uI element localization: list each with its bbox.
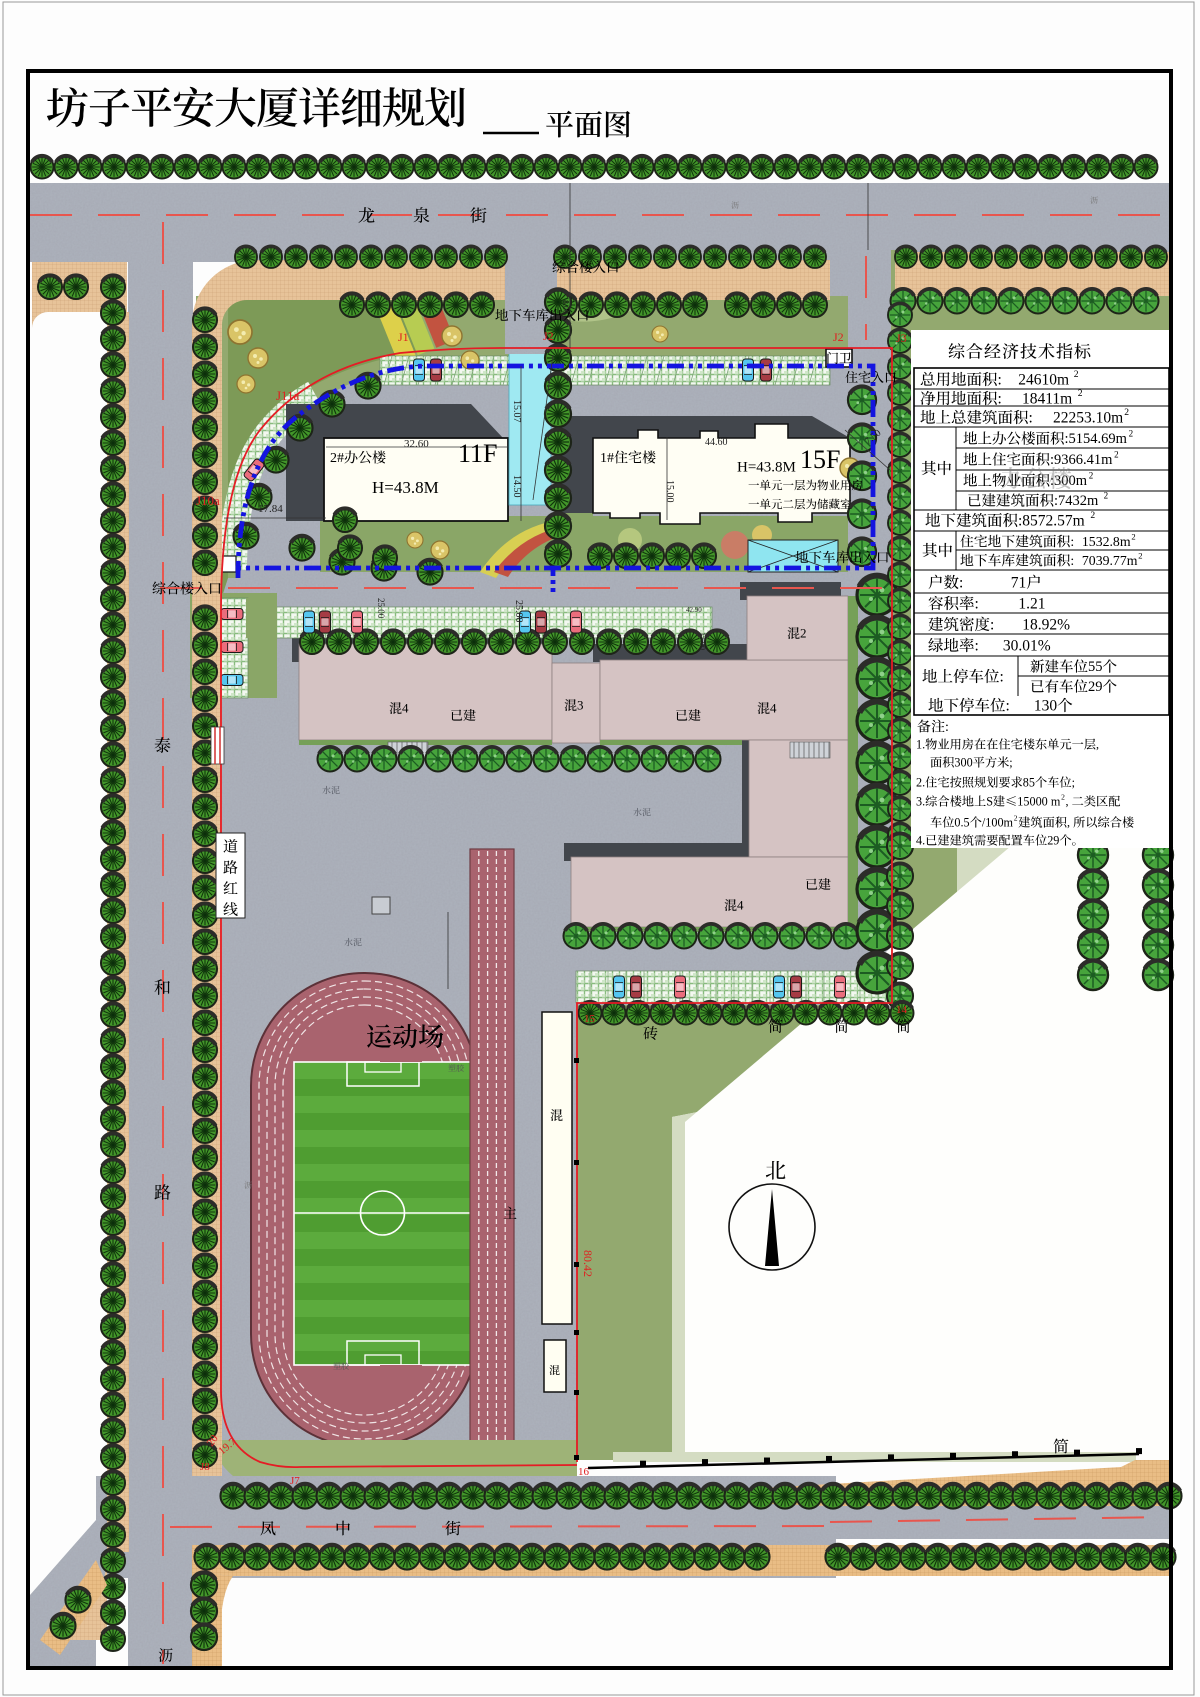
svg-text:8.00: 8.00 [561,300,570,314]
svg-text:2: 2 [1078,388,1083,399]
svg-text:18.92%: 18.92% [1022,617,1070,634]
svg-text:25.00: 25.00 [513,600,524,623]
svg-text:H=43.8M: H=43.8M [737,459,796,475]
svg-text::: : [975,596,979,613]
svg-text:7039.77m: 7039.77m [1082,553,1138,568]
svg-text:J10a: J10a [196,493,220,508]
svg-text::7432m: :7432m [1054,493,1099,509]
svg-text:2: 2 [1124,407,1129,418]
svg-text::: : [1006,698,1010,715]
svg-text:m: m [1051,794,1061,808]
svg-text:1.21: 1.21 [1018,596,1045,613]
svg-text::: : [1000,669,1004,686]
svg-text:J1: J1 [398,330,409,344]
svg-text:2: 2 [1131,531,1135,541]
svg-text:16: 16 [578,1466,590,1478]
svg-text:15F: 15F [800,445,840,474]
svg-text:,: , [1067,815,1070,829]
svg-text:/100m: /100m [982,815,1014,829]
svg-text:14: 14 [896,1004,908,1016]
svg-text:1.: 1. [916,737,925,751]
svg-text:29: 29 [1047,833,1059,847]
svg-text:2: 2 [1138,550,1142,560]
svg-text:42.90: 42.90 [686,606,702,614]
svg-text:S: S [986,794,993,808]
svg-text::9366.41m: :9366.41m [1050,452,1113,468]
svg-text:2: 2 [1089,470,1094,480]
svg-text:32.60: 32.60 [404,438,429,450]
svg-text:4.: 4. [916,833,925,847]
svg-text:2: 2 [800,626,807,641]
svg-text:4: 4 [737,898,744,913]
svg-text::: : [998,391,1002,408]
svg-text:2: 2 [1014,814,1018,823]
svg-text:J7: J7 [290,1475,300,1487]
svg-text::: : [1070,553,1074,568]
svg-text:J2: J2 [833,330,844,344]
svg-text:15000: 15000 [1017,794,1047,808]
svg-text:J11a: J11a [276,388,300,403]
svg-text::8572.57m: :8572.57m [1018,513,1085,530]
svg-text:2: 2 [1061,793,1065,802]
svg-text:J2: J2 [543,329,554,343]
svg-text:30.01%: 30.01% [1003,638,1051,655]
svg-text:15: 15 [584,1013,596,1025]
svg-text:2: 2 [1090,510,1095,521]
svg-text:18411m: 18411m [1022,391,1072,408]
svg-text:2.: 2. [916,775,925,789]
svg-text:3: 3 [577,698,584,713]
svg-text:85: 85 [1023,775,1035,789]
svg-text:25.00: 25.00 [376,598,386,619]
svg-text:11F: 11F [458,439,498,468]
svg-text::: : [990,617,994,634]
svg-text:1#: 1# [600,451,614,466]
svg-text:;: ; [1009,755,1012,769]
svg-text:0.5: 0.5 [954,815,969,829]
svg-text::: : [998,372,1002,389]
svg-text::: : [975,638,979,655]
svg-text:44.60: 44.60 [705,437,728,448]
svg-text:2: 2 [1074,369,1079,380]
svg-text:4: 4 [770,701,777,716]
svg-text:80.42: 80.42 [581,1250,595,1277]
svg-text:2: 2 [1129,428,1134,438]
svg-text::: : [1029,410,1033,427]
svg-text:17.84: 17.84 [258,503,283,515]
svg-text:29: 29 [1088,679,1103,695]
svg-text:130: 130 [1034,698,1058,715]
svg-text:24610m: 24610m [1018,372,1069,389]
svg-text:2: 2 [1104,490,1109,500]
svg-text:15.07: 15.07 [511,400,522,423]
svg-text:1532.8m: 1532.8m [1082,534,1131,549]
svg-text:15.00: 15.00 [698,632,707,650]
svg-text:22253.10m: 22253.10m [1053,410,1123,427]
svg-text:55: 55 [1088,659,1103,675]
svg-text:;: ; [1072,775,1075,789]
svg-text:2#: 2# [330,451,344,466]
svg-text:,: , [1096,737,1099,751]
svg-text:2: 2 [1114,449,1119,459]
svg-text:J3: J3 [896,331,907,345]
svg-text:15.00: 15.00 [664,480,675,503]
svg-text:71: 71 [1011,575,1026,592]
svg-text:300: 300 [954,755,972,769]
svg-text:,: , [1066,794,1069,808]
svg-text:H=43.8M: H=43.8M [372,478,439,497]
svg-text:4: 4 [402,701,409,716]
svg-text::5154.69m: :5154.69m [1065,431,1128,447]
svg-text::: : [945,720,949,735]
svg-text:3.: 3. [916,794,925,808]
svg-text::: : [959,575,963,592]
svg-text:14.50: 14.50 [511,475,522,498]
svg-text::: : [1070,534,1074,549]
svg-text:J8: J8 [200,1461,210,1473]
